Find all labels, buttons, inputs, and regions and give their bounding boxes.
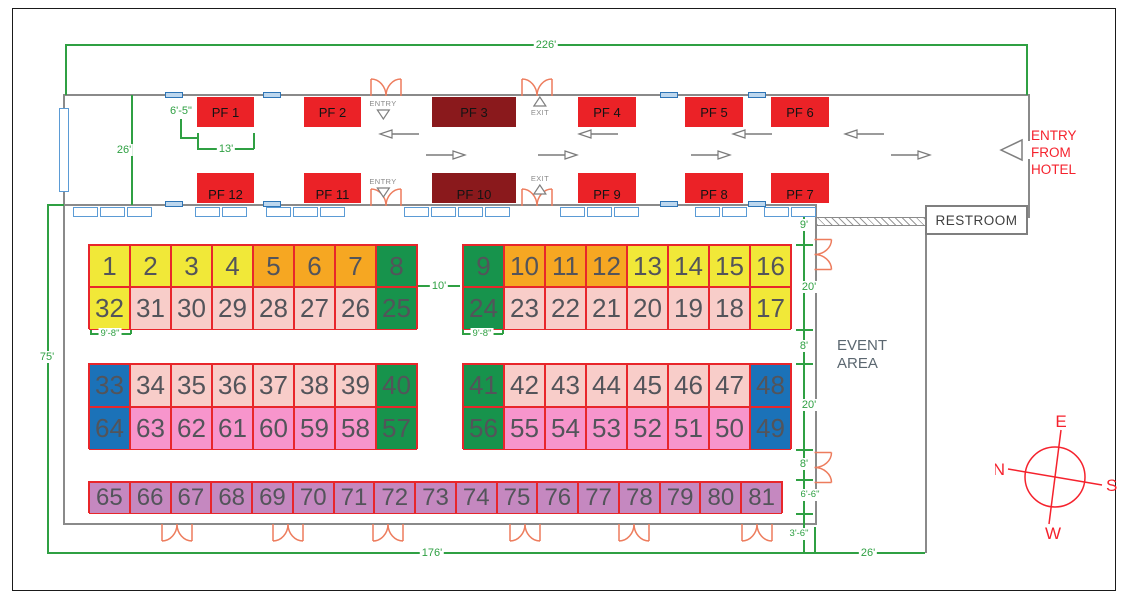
booth-1: 1	[89, 245, 130, 287]
wall-opening	[165, 201, 183, 207]
booth-45: 45	[627, 364, 668, 407]
booth-35: 35	[171, 364, 212, 407]
door-icon	[617, 524, 651, 543]
compass-west: W	[1045, 524, 1061, 543]
booth-4: 4	[212, 245, 253, 287]
entry-hotel-line1: ENTRY	[1031, 127, 1077, 144]
table-rect	[195, 207, 220, 217]
dim-tick	[1026, 44, 1028, 95]
table-rect	[458, 207, 483, 217]
booth-75: 75	[497, 482, 538, 514]
dim-label-gap-20b: 20'	[800, 399, 818, 411]
table-rect	[485, 207, 510, 217]
booth-44: 44	[586, 364, 627, 407]
booth-3: 3	[171, 245, 212, 287]
flow-arrow-icon	[537, 149, 579, 161]
dim-label-gap-8b: 8'	[798, 458, 810, 470]
pf-booth-pf-10: PF 10	[432, 173, 516, 203]
booth-72: 72	[374, 482, 415, 514]
dim-label-226: 226'	[534, 39, 558, 51]
pf-booth-pf-5: PF 5	[685, 97, 743, 127]
booth-22: 22	[545, 287, 586, 330]
booth-9: 9	[463, 245, 504, 287]
dim-tick	[796, 513, 813, 515]
booth-42: 42	[504, 364, 545, 407]
event-area-label: EVENT AREA	[837, 337, 887, 373]
flow-arrow-icon	[577, 128, 619, 140]
corridor-right-wall-upper	[1028, 94, 1030, 141]
booth-17: 17	[750, 287, 791, 330]
booth-19: 19	[668, 287, 709, 330]
compass-north: N	[995, 460, 1005, 479]
booth-63: 63	[130, 407, 171, 450]
flow-arrow-icon	[843, 128, 885, 140]
corridor-right-wall-lower	[1028, 159, 1030, 218]
entry-hotel-line3: HOTEL	[1031, 161, 1077, 178]
booth-15: 15	[709, 245, 750, 287]
pf-booth-pf-1: PF 1	[197, 97, 254, 127]
entry-hotel-line2: FROM	[1031, 144, 1077, 161]
table-rect	[791, 207, 816, 217]
booth-26: 26	[335, 287, 376, 330]
booth-54: 54	[545, 407, 586, 450]
entry-marker-bottom-label: ENTRY	[369, 177, 396, 186]
booth-30: 30	[171, 287, 212, 330]
booth-14: 14	[668, 245, 709, 287]
door-icon	[815, 451, 834, 485]
door-icon	[160, 524, 194, 543]
dim-label-gap-8a: 8'	[798, 340, 810, 352]
booth-block-upper-right: 9101112131415162423222120191817	[462, 244, 792, 329]
booth-61: 61	[212, 407, 253, 450]
booth-68: 68	[211, 482, 252, 514]
pf-booth-pf-9: PF 9	[578, 173, 636, 203]
dim-label-9-8-right: 9'-8"	[471, 328, 494, 340]
pf-booth-pf-2: PF 2	[304, 97, 361, 127]
wall-opening	[748, 92, 766, 98]
dim-label-26-bottom: 26'	[859, 547, 877, 559]
event-area-line2: AREA	[837, 355, 887, 373]
table-rect	[73, 207, 98, 217]
booth-38: 38	[294, 364, 335, 407]
table-rect	[222, 207, 247, 217]
booth-81: 81	[741, 482, 782, 514]
dim-line-bottom	[47, 552, 925, 554]
dim-bracket	[180, 137, 198, 139]
door-icon	[815, 238, 834, 272]
booth-58: 58	[335, 407, 376, 450]
dim-line-right-column	[803, 214, 805, 553]
dim-tick	[47, 204, 64, 206]
pf-booth-pf-6: PF 6	[771, 97, 829, 127]
booth-59: 59	[294, 407, 335, 450]
booth-block-bottom-strip: 6566676869707172737475767778798081	[88, 481, 783, 513]
booth-20: 20	[627, 287, 668, 330]
booth-70: 70	[293, 482, 334, 514]
dim-tick	[796, 479, 813, 481]
wall-opening	[660, 201, 678, 207]
booth-37: 37	[253, 364, 294, 407]
booth-43: 43	[545, 364, 586, 407]
exit-marker-bottom-label: EXIT	[531, 174, 549, 183]
booth-12: 12	[586, 245, 627, 287]
left-wall-window	[59, 108, 69, 192]
booth-29: 29	[212, 287, 253, 330]
entry-marker-top-label: ENTRY	[369, 99, 396, 108]
dim-line-75	[47, 205, 49, 553]
booth-block-middle-left: 33343536373839406463626160595857	[88, 363, 418, 449]
booth-62: 62	[171, 407, 212, 450]
dim-label-10-aisle: 10'	[430, 280, 448, 292]
table-rect	[695, 207, 720, 217]
booth-10: 10	[504, 245, 545, 287]
booth-34: 34	[130, 364, 171, 407]
pf-booth-pf-8: PF 8	[685, 173, 743, 203]
flow-arrow-icon	[890, 149, 932, 161]
flow-arrow-icon	[731, 128, 773, 140]
exit-marker-bottom: EXIT	[531, 174, 549, 195]
wall-opening	[263, 201, 281, 207]
booth-52: 52	[627, 407, 668, 450]
dim-tick	[814, 527, 816, 553]
booth-71: 71	[334, 482, 375, 514]
booth-25: 25	[376, 287, 417, 330]
hatched-wall	[817, 217, 925, 226]
pf-booth-pf-4: PF 4	[578, 97, 636, 127]
flow-arrow-icon	[425, 149, 467, 161]
table-rect	[127, 207, 152, 217]
dim-tick	[796, 363, 813, 365]
booth-33: 33	[89, 364, 130, 407]
booth-27: 27	[294, 287, 335, 330]
door-icon	[740, 524, 774, 543]
entry-marker-bottom: ENTRY	[369, 177, 396, 198]
dim-label-13: 13'	[217, 143, 235, 155]
pf-booth-pf-12: PF 12	[197, 173, 254, 203]
door-icon	[369, 77, 403, 96]
dim-label-26-corridor: 26'	[115, 144, 133, 156]
booth-31: 31	[130, 287, 171, 330]
booth-48: 48	[750, 364, 791, 407]
booth-66: 66	[130, 482, 171, 514]
booth-7: 7	[335, 245, 376, 287]
booth-57: 57	[376, 407, 417, 450]
booth-13: 13	[627, 245, 668, 287]
booth-23: 23	[504, 287, 545, 330]
booth-16: 16	[750, 245, 791, 287]
booth-60: 60	[253, 407, 294, 450]
dim-label-3-6: 3'-6"	[788, 528, 811, 540]
compass-south: S	[1106, 476, 1117, 495]
table-rect	[266, 207, 291, 217]
booth-18: 18	[709, 287, 750, 330]
booth-block-upper-left: 123456783231302928272625	[88, 244, 418, 329]
booth-69: 69	[252, 482, 293, 514]
dim-label-6-5: 6'-5"	[168, 105, 194, 117]
dim-tick	[197, 133, 199, 149]
table-rect	[614, 207, 639, 217]
entry-marker-bottom-triangle-icon	[376, 187, 390, 198]
dim-tick	[796, 449, 813, 451]
booth-64: 64	[89, 407, 130, 450]
booth-80: 80	[700, 482, 741, 514]
table-rect	[100, 207, 125, 217]
table-rect	[431, 207, 456, 217]
booth-41: 41	[463, 364, 504, 407]
booth-73: 73	[415, 482, 456, 514]
dim-tick	[796, 244, 813, 246]
event-area-line1: EVENT	[837, 337, 887, 355]
booth-11: 11	[545, 245, 586, 287]
entry-marker-top: ENTRY	[369, 99, 396, 120]
pf-booth-pf-3: PF 3	[432, 97, 516, 127]
restroom-label: RESTROOM	[935, 213, 1017, 228]
restroom-box: RESTROOM	[925, 205, 1028, 235]
booth-24: 24	[463, 287, 504, 330]
hotel-entry-arrow-icon	[999, 137, 1025, 163]
flow-arrow-icon	[690, 149, 732, 161]
wall-opening	[748, 201, 766, 207]
booth-77: 77	[578, 482, 619, 514]
booth-47: 47	[709, 364, 750, 407]
wall-opening	[263, 92, 281, 98]
door-icon	[371, 524, 405, 543]
event-area-right-wall	[925, 235, 927, 553]
table-rect	[764, 207, 789, 217]
booth-55: 55	[504, 407, 545, 450]
dim-tick	[65, 44, 67, 95]
table-rect	[722, 207, 747, 217]
entry-marker-top-triangle-icon	[376, 109, 390, 120]
exit-marker-bottom-triangle-icon	[533, 184, 547, 195]
booth-67: 67	[171, 482, 212, 514]
exit-marker-top: EXIT	[531, 96, 549, 117]
table-rect	[560, 207, 585, 217]
door-icon	[271, 524, 305, 543]
booth-5: 5	[253, 245, 294, 287]
booth-74: 74	[456, 482, 497, 514]
table-rect	[587, 207, 612, 217]
dim-label-75: 75'	[38, 351, 56, 363]
flow-arrow-icon	[378, 128, 420, 140]
exit-marker-top-triangle-icon	[533, 96, 547, 107]
dim-tick	[796, 329, 813, 331]
booth-8: 8	[376, 245, 417, 287]
dim-label-6-6: 6'-6"	[799, 489, 822, 501]
dim-bracket	[180, 119, 182, 139]
dim-label-9-8-left: 9'-8"	[99, 328, 122, 340]
booth-51: 51	[668, 407, 709, 450]
booth-78: 78	[619, 482, 660, 514]
booth-76: 76	[537, 482, 578, 514]
booth-36: 36	[212, 364, 253, 407]
exit-marker-top-label: EXIT	[531, 108, 549, 117]
table-rect	[404, 207, 429, 217]
dim-tick	[253, 133, 255, 149]
door-icon	[508, 524, 542, 543]
door-icon	[520, 77, 554, 96]
booth-39: 39	[335, 364, 376, 407]
booth-50: 50	[709, 407, 750, 450]
compass-icon: E S W N	[995, 415, 1120, 545]
booth-46: 46	[668, 364, 709, 407]
booth-block-middle-right: 41424344454647485655545352515049	[462, 363, 792, 449]
entry-from-hotel-label: ENTRY FROM HOTEL	[1031, 127, 1077, 178]
wall-opening	[660, 92, 678, 98]
booth-49: 49	[750, 407, 791, 450]
booth-65: 65	[89, 482, 130, 514]
booth-2: 2	[130, 245, 171, 287]
wall-opening	[165, 92, 183, 98]
booth-53: 53	[586, 407, 627, 450]
booth-40: 40	[376, 364, 417, 407]
pf-booth-pf-7: PF 7	[771, 173, 829, 203]
compass-east: E	[1055, 415, 1066, 431]
floor-plan: 226' 26' 75' 176' 26' 10' 9'-8" 9'-8" 6'…	[0, 0, 1130, 601]
booth-28: 28	[253, 287, 294, 330]
table-rect	[320, 207, 345, 217]
booth-79: 79	[660, 482, 701, 514]
booth-56: 56	[463, 407, 504, 450]
dim-label-176: 176'	[420, 547, 444, 559]
booth-6: 6	[294, 245, 335, 287]
dim-label-gap-20a: 20'	[800, 281, 818, 293]
booth-32: 32	[89, 287, 130, 330]
booth-21: 21	[586, 287, 627, 330]
table-rect	[293, 207, 318, 217]
dim-label-gap-9: 9'	[798, 219, 810, 231]
pf-booth-pf-11: PF 11	[304, 173, 361, 203]
